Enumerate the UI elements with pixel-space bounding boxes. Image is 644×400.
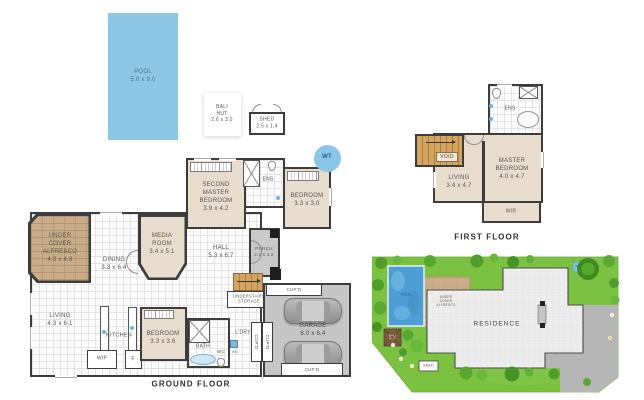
shower-icon: [519, 86, 538, 99]
sink-icon: [130, 326, 134, 330]
first-floor-title: FIRST FLOOR: [454, 233, 519, 244]
window: [431, 172, 436, 188]
room-alfresco: [28, 213, 91, 283]
pool-water: [391, 271, 405, 291]
bathtub-icon: [517, 111, 539, 128]
sink-icon: [276, 196, 280, 200]
pool-area: [108, 13, 178, 140]
pool-water: [408, 291, 420, 315]
window: [497, 82, 512, 87]
media-floor: [141, 217, 185, 278]
wardrobe-bedroom-front: [144, 310, 174, 319]
shower-icon: [189, 320, 210, 343]
ground-floor-title: GROUND FLOOR: [152, 380, 231, 391]
window: [28, 293, 33, 315]
ff-void-stairs: [415, 134, 464, 167]
window: [194, 156, 211, 161]
bathtub-icon: [190, 354, 216, 365]
pool-water: [394, 306, 410, 320]
sink-icon: [489, 117, 493, 121]
cupboard-top: [266, 284, 322, 296]
site-shed-box: [419, 361, 438, 371]
stairs-direction-line: [426, 142, 452, 143]
site-porch: [538, 305, 546, 324]
pillar: [270, 269, 281, 280]
cupboard-left-label: CUP'D: [254, 334, 259, 349]
ff-void-label: VOID: [436, 152, 458, 162]
window: [541, 152, 546, 168]
shower-icon: [243, 160, 260, 187]
window: [100, 210, 122, 215]
site-plan: [372, 253, 620, 394]
window: [329, 188, 334, 206]
stairs-arrow-icon: [257, 279, 261, 283]
stairs-arrow-icon: [452, 140, 456, 144]
site-pillar: [540, 323, 545, 328]
porch-pillar: [270, 229, 279, 238]
kitchen-counter: [128, 307, 137, 353]
window: [219, 156, 236, 161]
car-icon: [284, 298, 342, 324]
wip-pantry: [87, 350, 117, 369]
ff-wall-living-master: [482, 141, 485, 203]
stairs-direction-line: [237, 281, 257, 282]
ff-wir: [482, 201, 541, 223]
site-pillar: [540, 301, 545, 306]
cupboard-right-label: CUP'D: [265, 334, 270, 349]
wardrobe-second-master: [190, 162, 232, 172]
bali-hut-area: [204, 93, 241, 136]
alfresco-pavers: [31, 216, 89, 281]
laundry-trough: [230, 340, 238, 348]
window: [55, 375, 77, 380]
cupboard-bottom: [281, 363, 343, 376]
sink-icon: [102, 330, 106, 334]
room-media: [138, 214, 187, 280]
shed-area: [249, 112, 285, 135]
floorplan-page: POOL 5.0 x 9.0 BALI HUT 2.6 x 3.0 SHED 2…: [0, 0, 644, 400]
sink-icon: [489, 104, 493, 108]
window: [28, 327, 33, 349]
wardrobe-bedroom-rear: [287, 171, 319, 181]
water-tank-badge: [314, 145, 341, 172]
